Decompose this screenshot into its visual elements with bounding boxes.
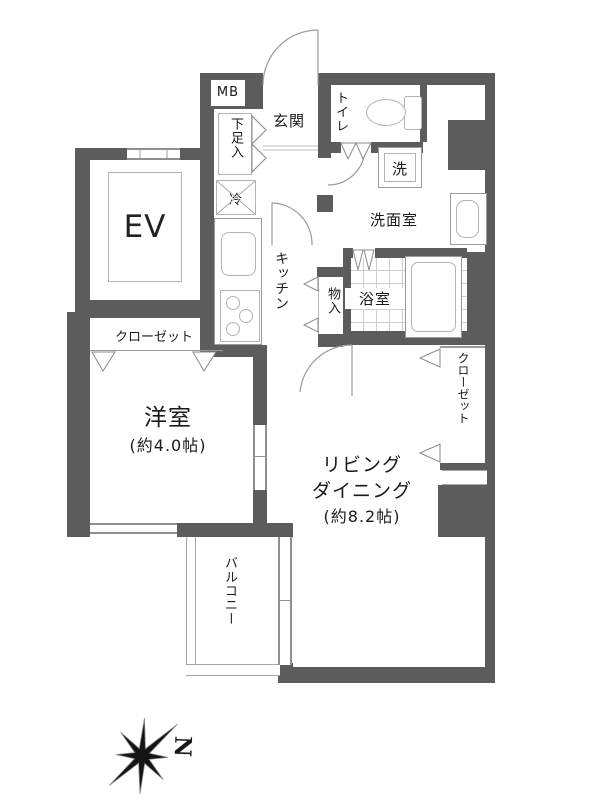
wall-segment (331, 142, 341, 153)
stove-burner-icon (239, 309, 253, 323)
living-door-arc (300, 345, 352, 396)
wall-segment (278, 667, 495, 683)
compass-rose-icon (109, 718, 177, 794)
wall-segment (67, 312, 90, 357)
room-label-western-room: 洋室 (98, 398, 238, 432)
closet-west-edge-line (90, 350, 223, 351)
wall-segment (448, 120, 495, 170)
balcony-rail-left (186, 537, 196, 675)
wall-segment (440, 463, 495, 470)
room-label-elevator: EV (103, 209, 187, 245)
washroom-door-arc (328, 148, 365, 185)
wall-segment (177, 523, 293, 537)
room-label-storage: 物入 (323, 287, 342, 315)
toilet-bowl-icon (366, 99, 406, 126)
bathtub-inner-icon (411, 262, 456, 332)
closet-east-door-fold-icon (420, 349, 440, 462)
floor-plan: MB 下足入 冷 洗 玄関 トイレ 洗面室 キッチン 物入 (0, 0, 600, 800)
compass-north-label: N (169, 736, 197, 758)
wash-basin-bowl-icon (456, 200, 479, 238)
room-label-kitchen: キッチン (271, 251, 291, 311)
balcony-glass-tick (278, 600, 292, 601)
wall-segment (75, 148, 90, 318)
room-label-washroom: 洗面室 (348, 209, 440, 230)
sliding-door-tick (253, 456, 267, 457)
toilet-tank-icon (404, 96, 422, 130)
stove-burner-icon (226, 296, 240, 310)
wall-segment (318, 85, 331, 158)
room-label-living-2: ダイニング (292, 476, 432, 503)
wall-segment (253, 345, 267, 425)
wall-segment (317, 267, 344, 277)
room-label-toilet: トイレ (331, 91, 350, 133)
room-label-western-room-size: (約4.0帖) (98, 432, 238, 456)
room-label-entrance: 玄関 (260, 110, 318, 131)
room-label-living-1: リビング (292, 450, 432, 477)
right-wall-slot (442, 470, 487, 485)
balcony-rail-bottom (186, 664, 280, 676)
room-label-bathroom: 浴室 (345, 288, 405, 309)
wall-segment (318, 73, 495, 85)
hallway-door-arc (272, 203, 312, 245)
stove-burner-icon (226, 322, 240, 336)
elevator-door (127, 148, 180, 160)
fridge-label: 冷 (216, 189, 256, 208)
meter-box-label: MB (211, 85, 245, 100)
balcony-glass-door (278, 537, 292, 665)
wall-segment (75, 300, 214, 318)
shoe-cabinet-label: 下足入 (226, 117, 245, 159)
storage-door-fold-icon (304, 277, 318, 332)
closet-west-door-fold-icon (92, 352, 216, 371)
wall-segment (317, 195, 333, 212)
room-label-closet-east: クローゼット (455, 352, 472, 424)
room-label-closet-west: クローゼット (92, 326, 216, 345)
washer-label: 洗 (378, 158, 422, 179)
toilet-door-fold-icon (341, 143, 371, 159)
west-room-window (90, 523, 177, 534)
kitchen-sink-icon (221, 232, 256, 276)
wall-segment (67, 357, 90, 537)
sliding-door (253, 425, 267, 490)
wall-segment (438, 485, 495, 537)
closet-east-edge-line (440, 346, 485, 348)
room-label-balcony: バルコニー (220, 556, 239, 626)
entrance-door-arc (263, 30, 318, 85)
room-label-living-size: (約8.2帖) (292, 503, 432, 527)
wall-segment (467, 252, 488, 344)
wall-segment (318, 334, 343, 347)
entrance-threshold-line (263, 146, 318, 150)
